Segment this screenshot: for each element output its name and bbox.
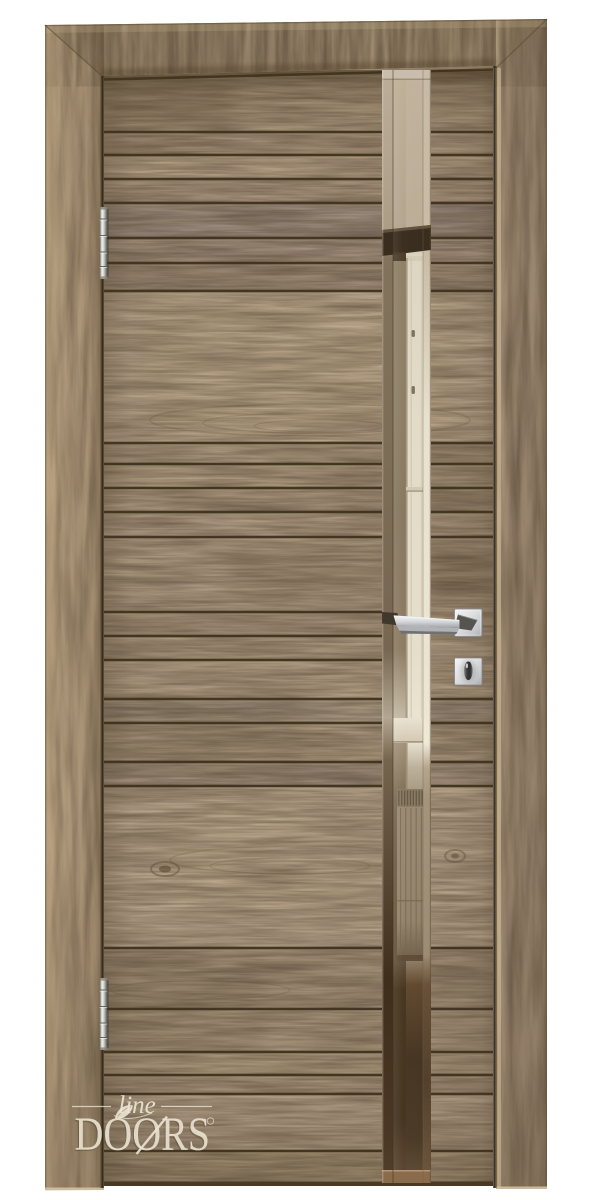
svg-text:line: line	[118, 1092, 156, 1119]
